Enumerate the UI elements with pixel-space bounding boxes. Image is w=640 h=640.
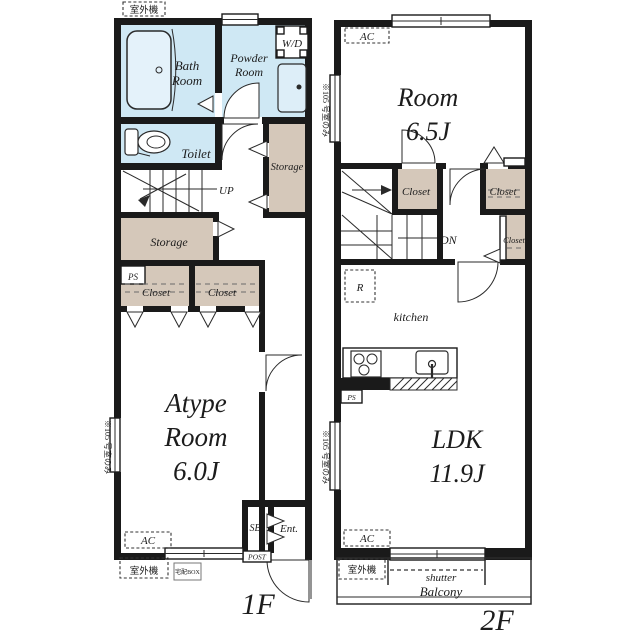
floor-plan-2f: AC Room 6.5J Closet Closet Closet DN R k… (321, 15, 532, 637)
label-closet-a: Closet (402, 186, 431, 198)
counter-front (390, 378, 457, 390)
label-sb: SB (249, 523, 260, 534)
closet-c-door-marker (484, 249, 500, 263)
label-entrance: Ent. (279, 523, 298, 535)
atype-room-door (266, 355, 302, 391)
toilet-tank (125, 129, 138, 155)
label-outdoor-unit-bottom: 室外機 (130, 565, 159, 577)
label-powder-line1: Powder (229, 51, 268, 65)
label-bath-line1: Bath (175, 58, 200, 73)
ldk-door (458, 262, 498, 302)
label-storage-mid: Storage (150, 235, 188, 249)
storage-mid-door-marker (218, 221, 234, 237)
label-outdoor-unit-top: 室外機 (130, 4, 159, 16)
label-ps-2f: PS (346, 393, 356, 402)
label-atype-line1: Atype (163, 388, 226, 418)
label-bath-line2: Room (171, 73, 202, 88)
label-closet-b: Closet (490, 187, 518, 198)
label-ac-top-2f: AC (359, 31, 375, 43)
closet-b-folding-door (484, 147, 504, 163)
floor-plan-drawing: 室外機 Bath Room Powder Room W/D Toilet Sto… (0, 0, 640, 640)
label-delivery-box: 宅配BOX (175, 568, 200, 576)
storage-right-door-marker2 (249, 194, 267, 210)
label-ldk-line2: 11.9J (429, 459, 486, 488)
closet-folding-door2 (171, 312, 187, 327)
label-atype-line3: 6.0J (173, 456, 221, 486)
floor2-doors (402, 130, 525, 302)
label-shutter: shutter (426, 572, 457, 584)
label-refrigerator: R (356, 282, 364, 294)
closet-folding-door1 (127, 312, 143, 327)
label-wd: W/D (282, 38, 302, 50)
label-ldk-line1: LDK (431, 425, 484, 454)
label-floor2-title: 2F (480, 604, 514, 637)
label-closet-right: Closet (208, 287, 237, 299)
closet-folding-door4 (245, 312, 261, 327)
label-ac: AC (140, 535, 156, 547)
label-post: POST (247, 553, 267, 562)
label-side-note-2f-bottom: ※105 号室のみ (321, 430, 331, 484)
label-side-note-1f: ※105 号室のみ (103, 420, 113, 474)
label-room-line1: Room (397, 83, 459, 112)
label-room-line2: 6.5J (406, 117, 452, 146)
label-outdoor-unit-2f: 室外機 (348, 564, 377, 576)
label-floor1-title: 1F (241, 588, 275, 621)
toilet-hall-door (222, 124, 258, 160)
label-balcony: Balcony (420, 584, 463, 599)
label-toilet: Toilet (181, 146, 211, 161)
floor-plan-1f: 室外機 Bath Room Powder Room W/D Toilet Sto… (103, 2, 312, 621)
label-closet-left: Closet (142, 287, 171, 299)
label-closet-c: Closet (503, 235, 525, 245)
label-powder-line2: Room (234, 65, 263, 79)
washing-machine (278, 64, 306, 112)
closet-folding-door3 (200, 312, 216, 327)
floor-plan-page: 室外機 Bath Room Powder Room W/D Toilet Sto… (0, 0, 640, 640)
stair-dn-arrow (381, 185, 392, 195)
storage-right-door-marker1 (249, 141, 267, 157)
bathtub (127, 31, 171, 109)
floor1-stairs (123, 170, 217, 212)
washing-machine-knob (297, 85, 302, 90)
label-kitchen: kitchen (394, 310, 429, 324)
floor2-equipment (339, 28, 390, 579)
label-atype-line2: Room (164, 422, 228, 452)
label-up: UP (219, 185, 234, 197)
floor2-kitchen (341, 348, 457, 403)
closet-b-sliding-panel (504, 158, 525, 166)
label-ps: PS (127, 272, 138, 282)
label-side-note-2f-top: ※105 号室のみ (321, 83, 331, 137)
label-storage-right: Storage (271, 162, 304, 173)
label-ac-bottom-2f: AC (359, 533, 375, 545)
label-dn: DN (439, 233, 458, 247)
